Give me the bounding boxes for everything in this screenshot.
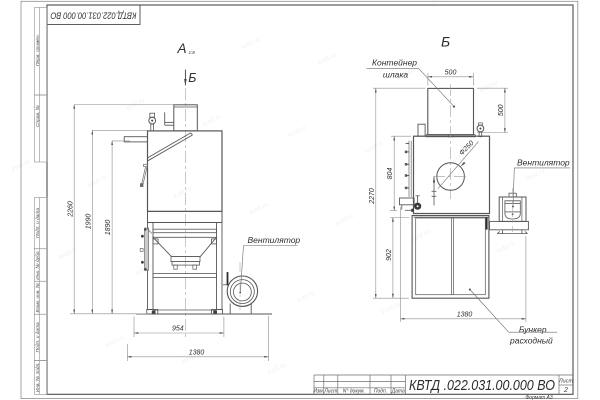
svg-text:500: 500 (498, 104, 505, 116)
svg-text:Инв. № подл.: Инв. № подл. (35, 362, 41, 392)
svg-text:1380: 1380 (189, 349, 205, 356)
svg-text:1890: 1890 (105, 220, 112, 236)
svg-text:А: А (177, 41, 187, 56)
svg-text:Подп. и дата: Подп. и дата (35, 208, 41, 238)
svg-text:954: 954 (172, 326, 184, 333)
svg-text:Вентилятор: Вентилятор (517, 158, 570, 168)
svg-text:Подп.: Подп. (374, 389, 387, 395)
svg-text:Дата: Дата (391, 389, 405, 395)
svg-text:Инв. № дубл.: Инв. № дубл. (35, 250, 41, 280)
svg-text:КВТД.022.031.00.000 ВО: КВТД.022.031.00.000 ВО (51, 10, 137, 20)
svg-text:Формат А3: Формат А3 (525, 395, 553, 400)
svg-text:Перв. примен.: Перв. примен. (35, 34, 41, 66)
svg-text:шлака: шлака (383, 70, 409, 80)
svg-text:Подп. и дата: Подп. и дата (35, 322, 41, 352)
svg-text:Бункер: Бункер (519, 324, 547, 334)
svg-text:Справ. №: Справ. № (35, 105, 41, 127)
svg-text:Взам. инв. №: Взам. инв. № (35, 283, 41, 313)
svg-text:2270: 2270 (369, 188, 376, 205)
svg-text:1990: 1990 (85, 214, 92, 230)
svg-text:расходный: расходный (509, 335, 553, 345)
svg-text:902: 902 (386, 249, 393, 261)
svg-text:Вентилятор: Вентилятор (248, 235, 301, 245)
svg-text:804: 804 (387, 168, 394, 180)
svg-text:Лист: Лист (323, 389, 337, 395)
svg-text:Лист: Лист (558, 379, 574, 385)
svg-text:Контейнер: Контейнер (372, 58, 417, 68)
svg-text:Изм.: Изм. (313, 389, 324, 395)
svg-text:500: 500 (445, 69, 457, 76)
svg-text:Б: Б (188, 71, 196, 85)
svg-text:N° докум.: N° докум. (343, 389, 365, 395)
svg-text:1380: 1380 (457, 311, 473, 318)
svg-text:2260: 2260 (67, 201, 74, 218)
svg-text:2: 2 (563, 387, 568, 394)
svg-text:Б: Б (441, 34, 450, 50)
svg-text:КВТД .022.031.00.000 ВО: КВТД .022.031.00.000 ВО (409, 378, 555, 394)
svg-text:1:8: 1:8 (189, 50, 196, 55)
